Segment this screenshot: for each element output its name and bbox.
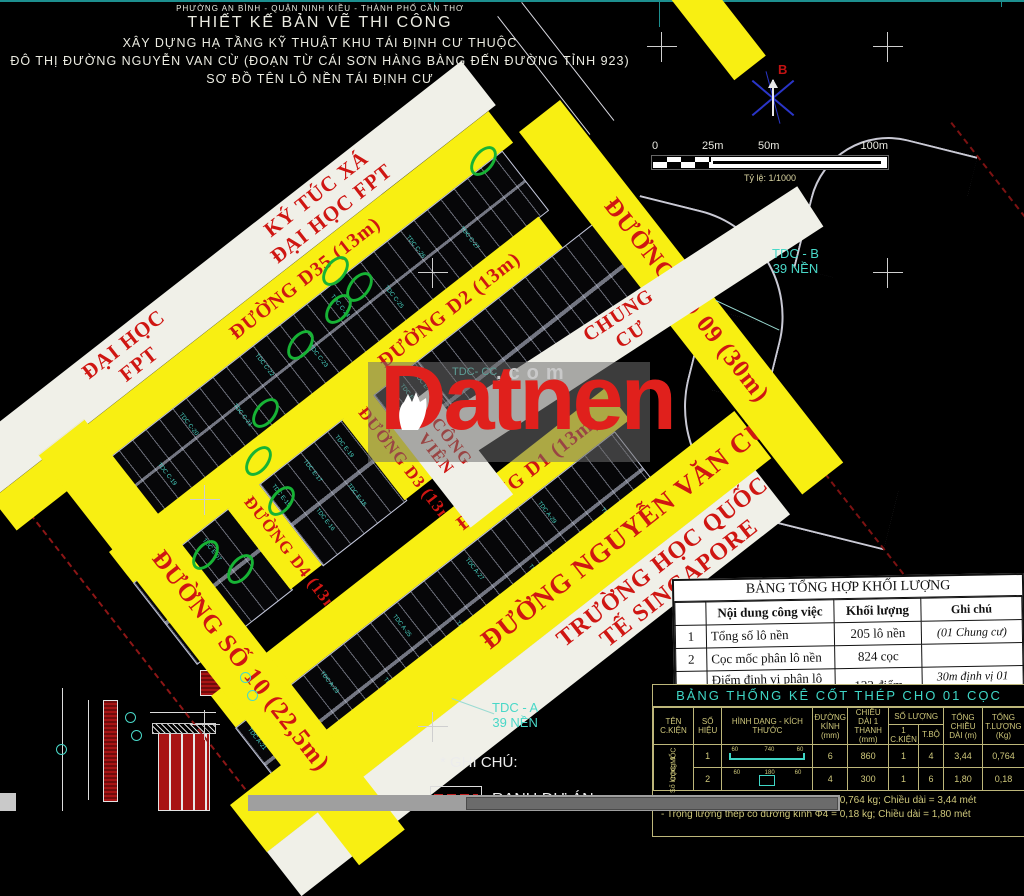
notes-heading: * GHI CHÚ: [440,754,518,771]
tdc-b-name: TDC - B [772,246,819,261]
plot-label: TDC C-25 [383,285,404,310]
overlay-gray-bar [248,795,840,811]
scale-tick-0: 0 [652,140,658,152]
rebar-header-row1: TÊN C.KIỆN SỐ HIỆU HÌNH DẠNG - KÍCH THƯỚ… [654,708,1024,725]
col-so-luong: SỐ LƯỢNG [889,708,944,725]
rebar-cell: 4 [813,768,848,791]
rebar-cell: 860 [848,745,889,768]
overlay-gray-bar-inner [466,797,838,810]
survey-cross [873,32,903,62]
rebar-callout-circle [56,744,67,755]
rebar-cell: 1 [693,745,722,768]
pile-section-detail [103,700,118,802]
scale-bar: 0 25m 50m 100m Tỷ lệ: 1/1000 [652,140,888,183]
survey-cross [190,485,220,515]
plot-label: TDC E-17 [302,459,323,484]
summary-cell: Cọc mốc phân lô nền [707,646,835,671]
summary-cell [922,642,1023,667]
plot-label: TDC C-21 [232,403,253,428]
survey-cross [190,710,220,740]
rebar-cell: 4 [918,745,943,768]
rebar-cell: 1,80 [944,768,983,791]
pile-elevation-detail [158,733,210,811]
rebar-row: 260180604300161,800,18 [654,768,1024,791]
rebar-cell: 3,44 [944,745,983,768]
col-quantity: Khối lượng [834,598,921,623]
col-index [675,602,706,626]
rebar-callout-circle [240,672,251,683]
plot-label: TDC C-22 [253,353,274,378]
rebar-callout-circle [125,712,136,723]
scale-tick-50: 50m [758,140,779,152]
dimension-line [88,700,89,800]
plot-label: TDC C-20 [178,412,199,437]
header-subtitle-3: SƠ ĐỒ TÊN LÔ NỀN TÁI ĐỊNH CƯ [0,72,640,86]
header-subtitle-1: XÂY DỰNG HẠ TẦNG KỸ THUẬT KHU TÁI ĐỊNH C… [0,36,640,50]
col-so-hieu: SỐ HIỆU [693,708,722,745]
header-location: PHƯỜNG AN BÌNH - QUẬN NINH KIỀU - THÀNH … [0,4,640,13]
plot-label: TDC C-27 [458,226,479,251]
rebar-table: BẢNG THỐNG KÊ CỐT THÉP CHO 01 CỌC TÊN C.… [652,684,1024,837]
rebar-table-title: BẢNG THỐNG KÊ CỐT THÉP CHO 01 CỌC [653,685,1024,707]
plot-label: TDC C-26 [405,235,426,260]
scale-bar-graphic [652,156,888,169]
scale-tick-100: 100m [860,140,888,152]
plot-label: TDC A-25 [391,614,412,638]
tdc-b-count: 39 NỀN [772,261,819,276]
watermark-hand-icon [396,390,430,439]
rebar-cell: 0,18 [982,768,1024,791]
rebar-callout-circle [131,730,142,741]
plot-label: TDC E-18 [346,483,367,508]
col-hinh-dang: HÌNH DẠNG - KÍCH THƯỚC [722,708,813,745]
plot-label: TDC A-29 [536,501,557,525]
summary-cell: 1 [675,625,706,649]
rebar-row: CỌC MỐCSố lượng: 1160740606860143,440,76… [654,745,1024,768]
rebar-side-label: CỌC MỐCSố lượng: 1 [654,745,694,791]
col-tong-tl: TỔNG T.LƯỢNG (Kg) [982,708,1024,745]
rebar-cell: 6 [813,745,848,768]
survey-cross [647,32,677,62]
corner-ui-square [0,793,16,811]
summary-cell: 824 cọc [835,644,922,669]
header-subtitle-2: ĐÔ THỊ ĐƯỜNG NGUYỄN VAN CỪ (ĐOẠN TỪ CÁI … [0,54,640,68]
plot-label: TDC A-23 [319,670,340,694]
rebar-shape-cell: 6074060 [722,745,813,768]
cad-site-plan: { "header": { "line1": "PHƯỜNG AN BÌNH -… [0,0,1024,811]
scale-tick-25: 25m [702,140,723,152]
col-sl-tbo: T.BỘ [918,725,943,745]
rebar-callout-circle [247,690,258,701]
summary-cell: 2 [676,648,707,672]
col-sl-1ckien: 1 C.KIỆN [889,725,919,745]
rebar-cell: 0,764 [982,745,1024,768]
tdc-a-count: 39 NỀN [492,715,538,730]
north-arrow: B [742,64,804,134]
summary-cell: (01 Chung cư) [921,619,1022,644]
drawing-title-block: PHƯỜNG AN BÌNH - QUẬN NINH KIỀU - THÀNH … [0,4,640,86]
tdc-b-annotation: TDC - B 39 NỀN [772,246,819,276]
rebar-cell: 1 [889,768,919,791]
plot-label: TDC A-27 [464,557,485,581]
col-duong-kinh: ĐƯỜNG KÍNH (mm) [813,708,848,745]
tdc-a-name: TDC - A [492,700,538,715]
col-work: Nội dung công việc [706,600,834,625]
rebar-cell: 2 [693,768,722,791]
col-note: Ghi chú [921,596,1022,621]
plot-label: TDC E-19 [333,434,354,459]
rebar-cell: 1 [889,745,919,768]
header-title: THIẾT KẾ BẢN VẼ THI CÔNG [0,14,640,32]
summary-cell: Tổng số lô nền [706,623,834,648]
frame-tick [1001,0,1002,7]
col-chieu-dai: CHIỀU DÀI 1 THANH (mm) [848,708,889,745]
rebar-cell: 6 [918,768,943,791]
rebar-cell: 300 [848,768,889,791]
plot-label: TDC E-16 [314,508,335,533]
plot-label: TDC C-19 [156,462,177,487]
rebar-shape-cell: 6018060 [722,768,813,791]
north-label: B [778,62,787,77]
frame-tick [659,0,660,27]
scale-caption: Tỷ lệ: 1/1000 [652,173,888,183]
summary-cell: 205 lô nền [834,621,921,646]
survey-cross [873,258,903,288]
compass-needle-head [768,74,778,88]
drawing-frame-top-line [0,0,1024,2]
col-ten-ckien: TÊN C.KIỆN [654,708,694,745]
watermark-suffix: .com [496,362,571,385]
col-tong-cd: TỔNG CHIỀU DÀI (m) [944,708,983,745]
survey-cross [418,712,448,742]
survey-cross [418,258,448,288]
tdc-a-annotation: TDC - A 39 NỀN [492,700,538,730]
